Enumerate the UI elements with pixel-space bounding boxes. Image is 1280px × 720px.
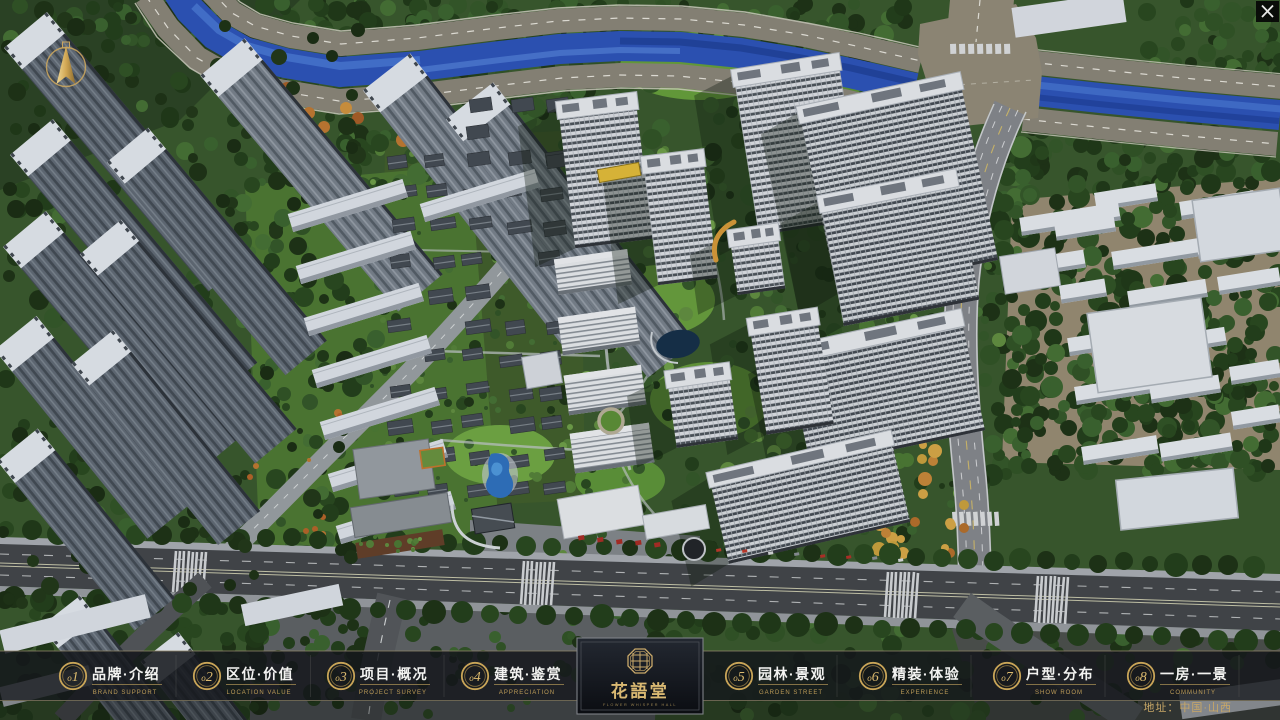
svg-text:o7: o7	[1001, 670, 1014, 685]
svg-text:户型·分布: 户型·分布	[1026, 666, 1094, 682]
svg-text:地址：中国·山西: 地址：中国·山西	[1143, 700, 1232, 714]
svg-text:区位·价值: 区位·价值	[226, 666, 294, 682]
svg-text:o2: o2	[201, 670, 213, 685]
svg-text:一房·一景: 一房·一景	[1160, 666, 1228, 682]
svg-text:项目·概况: 项目·概况	[360, 666, 428, 682]
svg-text:APPRECIATION: APPRECIATION	[499, 690, 555, 696]
svg-text:品牌·介绍: 品牌·介绍	[92, 666, 160, 682]
svg-text:园林·景观: 园林·景观	[758, 666, 826, 682]
svg-text:精装·体验: 精装·体验	[892, 666, 960, 682]
svg-text:SHOW ROOM: SHOW ROOM	[1035, 690, 1083, 696]
svg-text:LOCATION VALUE: LOCATION VALUE	[226, 690, 291, 696]
svg-text:EXPERIENCE: EXPERIENCE	[901, 690, 950, 696]
svg-text:PROJECT SURVEY: PROJECT SURVEY	[359, 690, 427, 696]
svg-text:o6: o6	[867, 670, 879, 685]
svg-text:GARDEN STREET: GARDEN STREET	[759, 690, 823, 696]
svg-text:o3: o3	[335, 670, 347, 685]
svg-text:花語堂: 花語堂	[611, 681, 670, 701]
svg-text:o1: o1	[67, 670, 79, 685]
svg-text:BRAND SUPPORT: BRAND SUPPORT	[93, 690, 158, 696]
svg-text:FLOWER WHISPER HALL: FLOWER WHISPER HALL	[603, 703, 677, 707]
svg-text:建筑·鉴赏: 建筑·鉴赏	[494, 666, 562, 682]
svg-text:o5: o5	[733, 670, 745, 685]
svg-text:o8: o8	[1135, 670, 1147, 685]
svg-text:COMMUNITY: COMMUNITY	[1170, 690, 1216, 696]
svg-text:o4: o4	[469, 670, 481, 685]
